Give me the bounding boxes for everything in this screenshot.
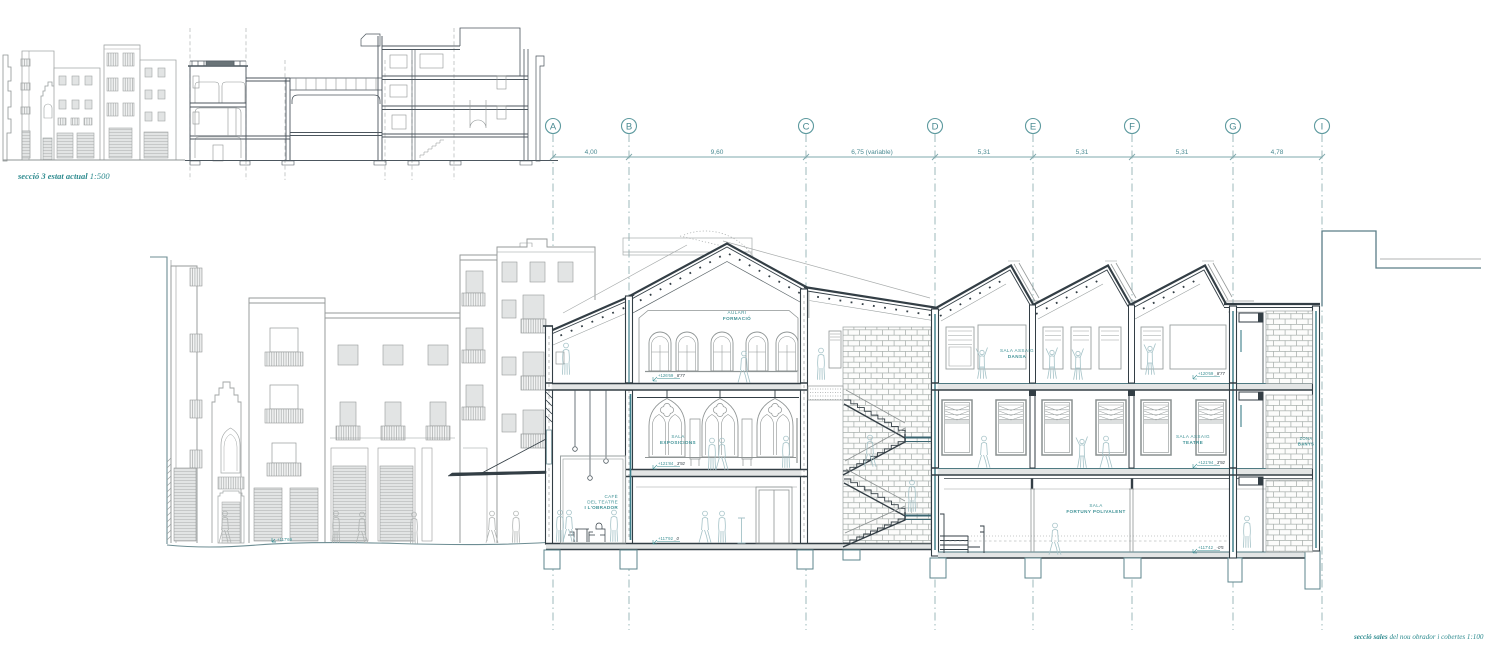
svg-text:SALA: SALA <box>671 434 685 439</box>
svg-text:5,31: 5,31 <box>1176 149 1189 156</box>
svg-text:C: C <box>803 122 810 133</box>
svg-text:EXPOSICIONS: EXPOSICIONS <box>660 440 696 445</box>
svg-text:4,78: 4,78 <box>1271 149 1284 156</box>
svg-text:FORTUNY POLIVALENT: FORTUNY POLIVALENT <box>1066 509 1125 514</box>
svg-text:5,31: 5,31 <box>1076 149 1089 156</box>
svg-text:SALA ASSAIG: SALA ASSAIG <box>1000 348 1034 353</box>
svg-text:F: F <box>1129 122 1135 133</box>
svg-text:6,75 (variable): 6,75 (variable) <box>851 149 893 156</box>
svg-text:SALA ASSAIG: SALA ASSAIG <box>1176 434 1210 439</box>
svg-text:I L'OBRADOR: I L'OBRADOR <box>585 505 619 510</box>
svg-text:+126'69 _8'77: +126'69 _8'77 <box>658 373 685 378</box>
svg-text:BANYS: BANYS <box>1298 442 1314 447</box>
svg-text:DANSA: DANSA <box>1008 354 1027 359</box>
svg-text:secció 3 estat actual 1:500: secció 3 estat actual 1:500 <box>17 171 110 181</box>
svg-text:I: I <box>1321 122 1324 133</box>
svg-text:4,00: 4,00 <box>585 149 598 156</box>
svg-text:CAFÈ: CAFÈ <box>605 493 618 499</box>
svg-text:ZONA: ZONA <box>1300 436 1313 441</box>
svg-text:+117'69: +117'69 <box>277 537 293 542</box>
svg-text:B: B <box>626 122 632 133</box>
svg-text:AULARI: AULARI <box>728 310 747 315</box>
svg-text:A: A <box>550 122 557 133</box>
svg-text:FORMACIÓ: FORMACIÓ <box>723 314 751 321</box>
svg-text:E: E <box>1030 122 1036 133</box>
svg-text:secció sales del nou obrador i: secció sales del nou obrador i cobertes … <box>1353 633 1484 641</box>
svg-text:+121'94 _3'92: +121'94 _3'92 <box>1198 460 1225 465</box>
svg-text:G: G <box>1229 122 1236 133</box>
svg-text:DEL TEATRE: DEL TEATRE <box>587 500 618 505</box>
svg-text:+120'69 _8'77: +120'69 _8'77 <box>1198 371 1225 376</box>
svg-text:5,31: 5,31 <box>978 149 991 156</box>
svg-text:TEATRE: TEATRE <box>1183 440 1203 445</box>
svg-text:+121'84 _3'92: +121'84 _3'92 <box>658 461 685 466</box>
svg-text:9,60: 9,60 <box>711 149 724 156</box>
svg-text:+117'92 _0: +117'92 _0 <box>658 536 680 541</box>
svg-text:D: D <box>932 122 939 133</box>
svg-text:SALA: SALA <box>1089 503 1103 508</box>
svg-text:+117'42 _-0'5: +117'42 _-0'5 <box>1198 545 1224 550</box>
